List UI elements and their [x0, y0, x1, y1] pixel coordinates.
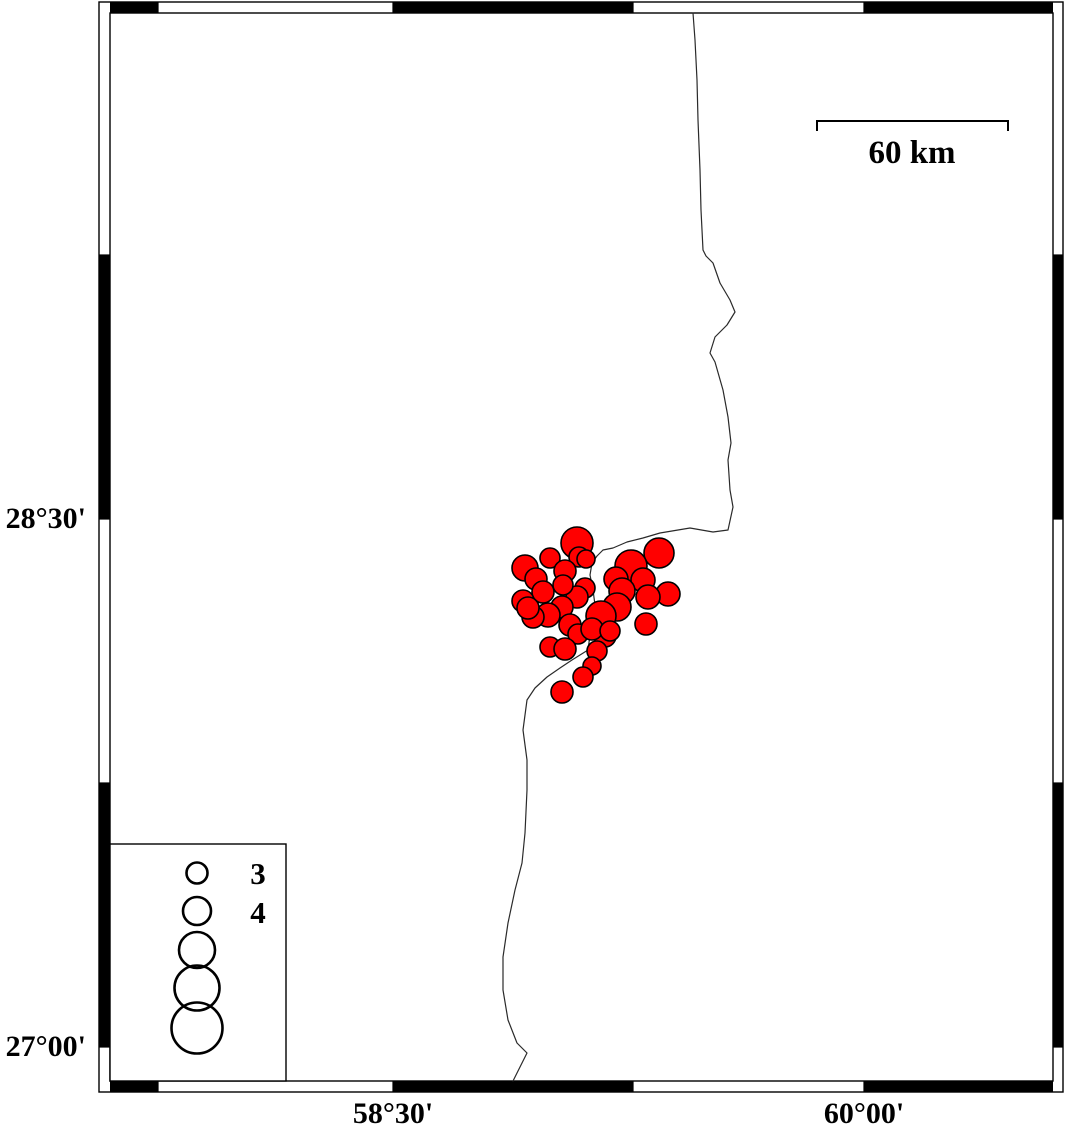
- earthquake-marker: [600, 621, 620, 641]
- frame-band-bottom-segment: [864, 1081, 1053, 1092]
- seismicity-map-figure: 28°30' 27°00' 58°30' 60°00' 60 km 3 4: [0, 0, 1066, 1129]
- y-axis-label-27-00: 27°00': [0, 1032, 86, 1062]
- earthquake-marker: [554, 638, 576, 660]
- x-axis-label-60-00: 60°00': [784, 1099, 944, 1129]
- legend-magnitude-3-label: 3: [241, 858, 275, 889]
- earthquake-marker: [636, 585, 660, 609]
- frame-band-top-segment: [393, 2, 633, 13]
- frame-band-right-segment: [1053, 783, 1063, 1047]
- earthquake-marker: [635, 613, 657, 635]
- frame-band-bottom-segment: [110, 1081, 158, 1092]
- earthquake-marker: [573, 667, 593, 687]
- legend-magnitude-4-label: 4: [241, 897, 275, 928]
- frame-band-right-segment: [1053, 255, 1063, 519]
- frame-band-top-segment: [864, 2, 1053, 13]
- y-axis-label-28-30: 28°30': [0, 504, 86, 534]
- frame-band-bottom-segment: [393, 1081, 633, 1092]
- coastline: [503, 13, 735, 1081]
- x-axis-label-58-30: 58°30': [313, 1099, 473, 1129]
- frame-band-top-segment: [110, 2, 158, 13]
- earthquake-marker: [517, 597, 539, 619]
- frame-band-left-segment: [99, 783, 110, 1047]
- earthquake-marker: [551, 681, 573, 703]
- frame-band-left-segment: [99, 255, 110, 519]
- earthquake-marker: [553, 575, 573, 595]
- earthquake-marker: [644, 538, 674, 568]
- earthquake-marker: [577, 550, 595, 568]
- scale-bar: [817, 121, 1008, 131]
- scale-bar-label: 60 km: [832, 137, 992, 170]
